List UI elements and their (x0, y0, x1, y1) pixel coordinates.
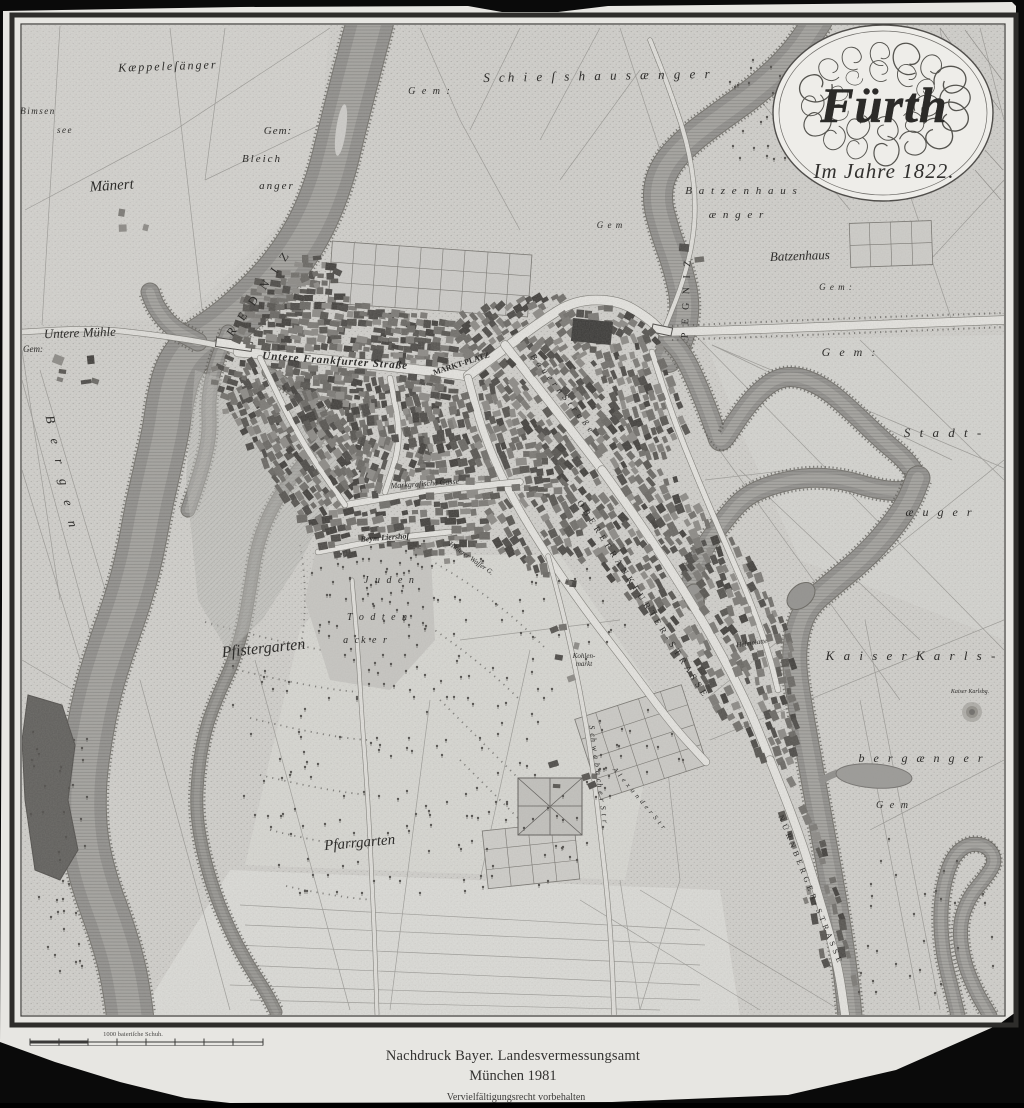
svg-text:G e m :: G e m : (819, 282, 853, 292)
svg-text:Bleich: Bleich (242, 153, 282, 165)
svg-text:J u d e n: J u d e n (364, 575, 416, 586)
svg-text:Untere Mühle: Untere Mühle (44, 324, 117, 342)
svg-text:a ck e r: a ck e r (343, 635, 389, 646)
svg-text:Im Jahre 1822.: Im Jahre 1822. (813, 159, 955, 183)
svg-text:G e m: G e m (876, 800, 910, 811)
svg-text:Mänert: Mänert (88, 176, 135, 195)
svg-text:1000 baieriſche Schuh.: 1000 baieriſche Schuh. (103, 1031, 163, 1038)
svg-text:Vervielfältigungsrecht vorbeha: Vervielfältigungsrecht vorbehalten (447, 1092, 586, 1103)
svg-text:Nachdruck Bayer. Landesvermes: Nachdruck Bayer. Landesvermessungsamt (386, 1048, 640, 1064)
svg-text:G e m :: G e m : (408, 86, 452, 97)
svg-text:Batzenhaus: Batzenhaus (770, 247, 830, 264)
svg-text:æ u g e r: æ u g e r (906, 505, 975, 519)
svg-text:B a t z e n h a u s: B a t z e n h a u s (685, 185, 798, 197)
svg-text:Fürth: Fürth (819, 77, 947, 133)
svg-text:Gem:: Gem: (23, 344, 43, 354)
svg-text:markt: markt (576, 660, 593, 668)
svg-text:S t a d t -: S t a d t - (904, 425, 984, 440)
svg-text:T o d t e n: T o d t e n (347, 612, 409, 623)
svg-text:Gem:: Gem: (264, 125, 292, 137)
svg-text:G e m: G e m (597, 220, 624, 230)
svg-text:G e m :: G e m : (822, 345, 879, 359)
svg-text:anger: anger (259, 180, 295, 192)
svg-text:Kohlen-: Kohlen- (572, 652, 596, 660)
svg-text:München 1981: München 1981 (469, 1068, 556, 1084)
svg-text:b e r g æ n g e r: b e r g æ n g e r (859, 751, 986, 765)
svg-text:Kaiser Karlsbg.: Kaiser Karlsbg. (950, 689, 989, 695)
svg-text:æ n g e r: æ n g e r (709, 209, 766, 221)
svg-text:Bimsen: Bimsen (20, 106, 56, 116)
svg-text:K a i s e r K a r l s -: K a i s e r K a r l s - (825, 648, 999, 663)
svg-text:see: see (57, 125, 73, 135)
